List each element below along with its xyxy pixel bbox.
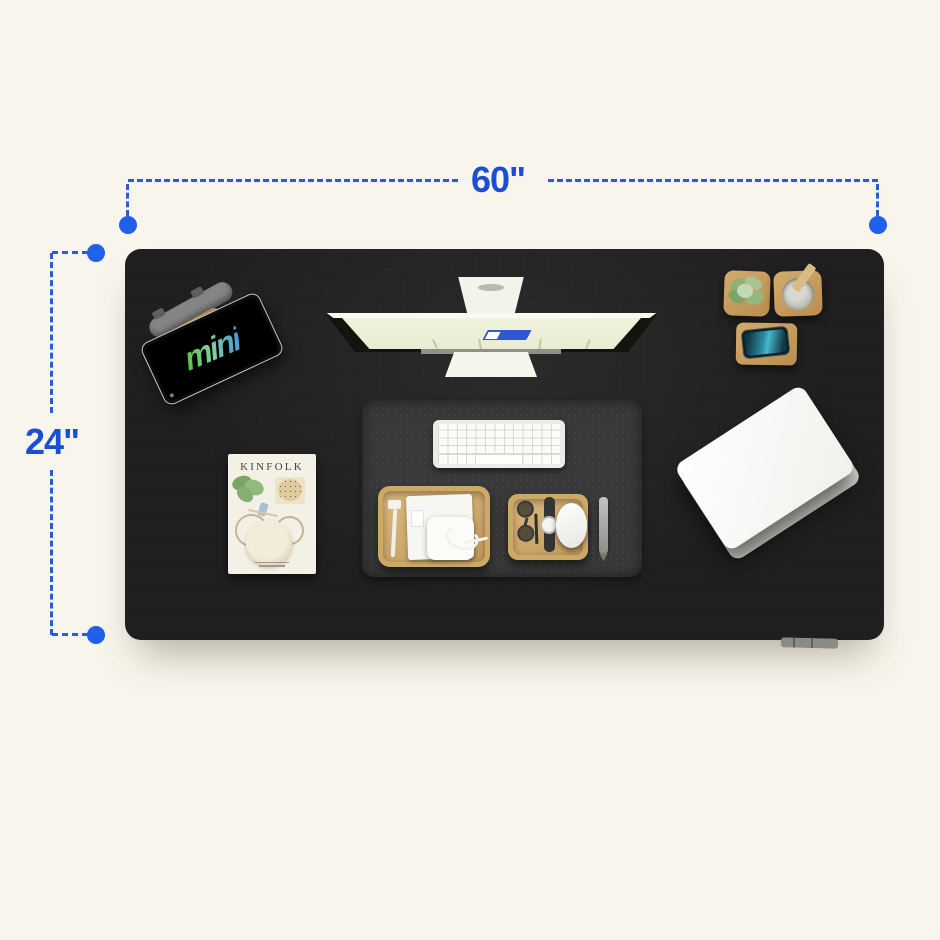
small-accessory [411,510,424,527]
monitor-screen [325,313,658,352]
monitor-screen-face [339,318,644,349]
eyeglasses-temple [534,514,538,544]
pen-holder [773,270,823,317]
accessory-tray-small [508,494,588,560]
keyboard-bottom-row [438,454,560,464]
width-dimension-line-left [128,179,458,182]
height-endpoint-dot-bottom [87,626,105,644]
magazine-bottom-text [255,562,289,564]
monitor-stand [452,277,530,315]
cable-organizer-clip [781,637,838,648]
accessory-tray-large [378,486,490,567]
usb-cable-plug [388,500,401,509]
laptop-lid [673,384,856,552]
desk-surface: mini [125,249,884,640]
closed-laptop [681,411,861,546]
height-endpoint-dot-top [87,244,105,262]
smartphone-screen [744,329,787,356]
screen-reflection-line [478,339,481,349]
screen-reflection-line [585,339,590,349]
height-dimension-tick-top [52,251,88,254]
keyboard-spacebar [475,455,523,464]
screen-window-highlight [485,332,501,339]
power-adapter [427,517,474,560]
magazine-cream-bowl [246,520,292,566]
product-dimension-image: 60" 24" mini [0,0,940,940]
pen [599,497,608,554]
monitor-top-rim [325,313,658,318]
magazine-seed-bowl [275,477,305,504]
wireless-charger [736,322,798,365]
width-dimension-line-right [548,179,878,182]
monitor-cable-hole [478,284,504,291]
eyeglasses-lens [516,500,535,519]
width-dimension-tick-right [876,184,879,216]
width-endpoint-dot-left [119,216,137,234]
wireless-mouse [556,503,587,548]
width-endpoint-dot-right [869,216,887,234]
height-dimension-line-top [50,253,53,413]
height-dimension-line-bottom [50,470,53,635]
width-dimension-tick-left [126,184,129,216]
eyeglasses-lens [516,524,535,543]
screen-reflection-line [538,339,541,349]
smartphone [741,326,791,360]
wireless-keyboard [433,420,565,468]
kinfolk-magazine: KINFOLK [228,454,316,574]
magazine-bottom-text [259,565,285,567]
magazine-seed-bowl-inner [278,479,302,501]
height-dimension-label: 24" [12,424,92,460]
magazine-title: KINFOLK [228,461,316,473]
height-dimension-tick-bottom [52,633,88,636]
keyboard-keys [438,424,560,454]
width-dimension-label: 60" [448,162,548,198]
screen-reflection-line [432,339,438,349]
screen-window-reflection [482,330,531,340]
monitor-stand-foot [445,352,537,377]
desktop-monitor [325,275,658,379]
succulent-planter [723,270,771,317]
tablet-screen-text: mini [181,320,244,379]
